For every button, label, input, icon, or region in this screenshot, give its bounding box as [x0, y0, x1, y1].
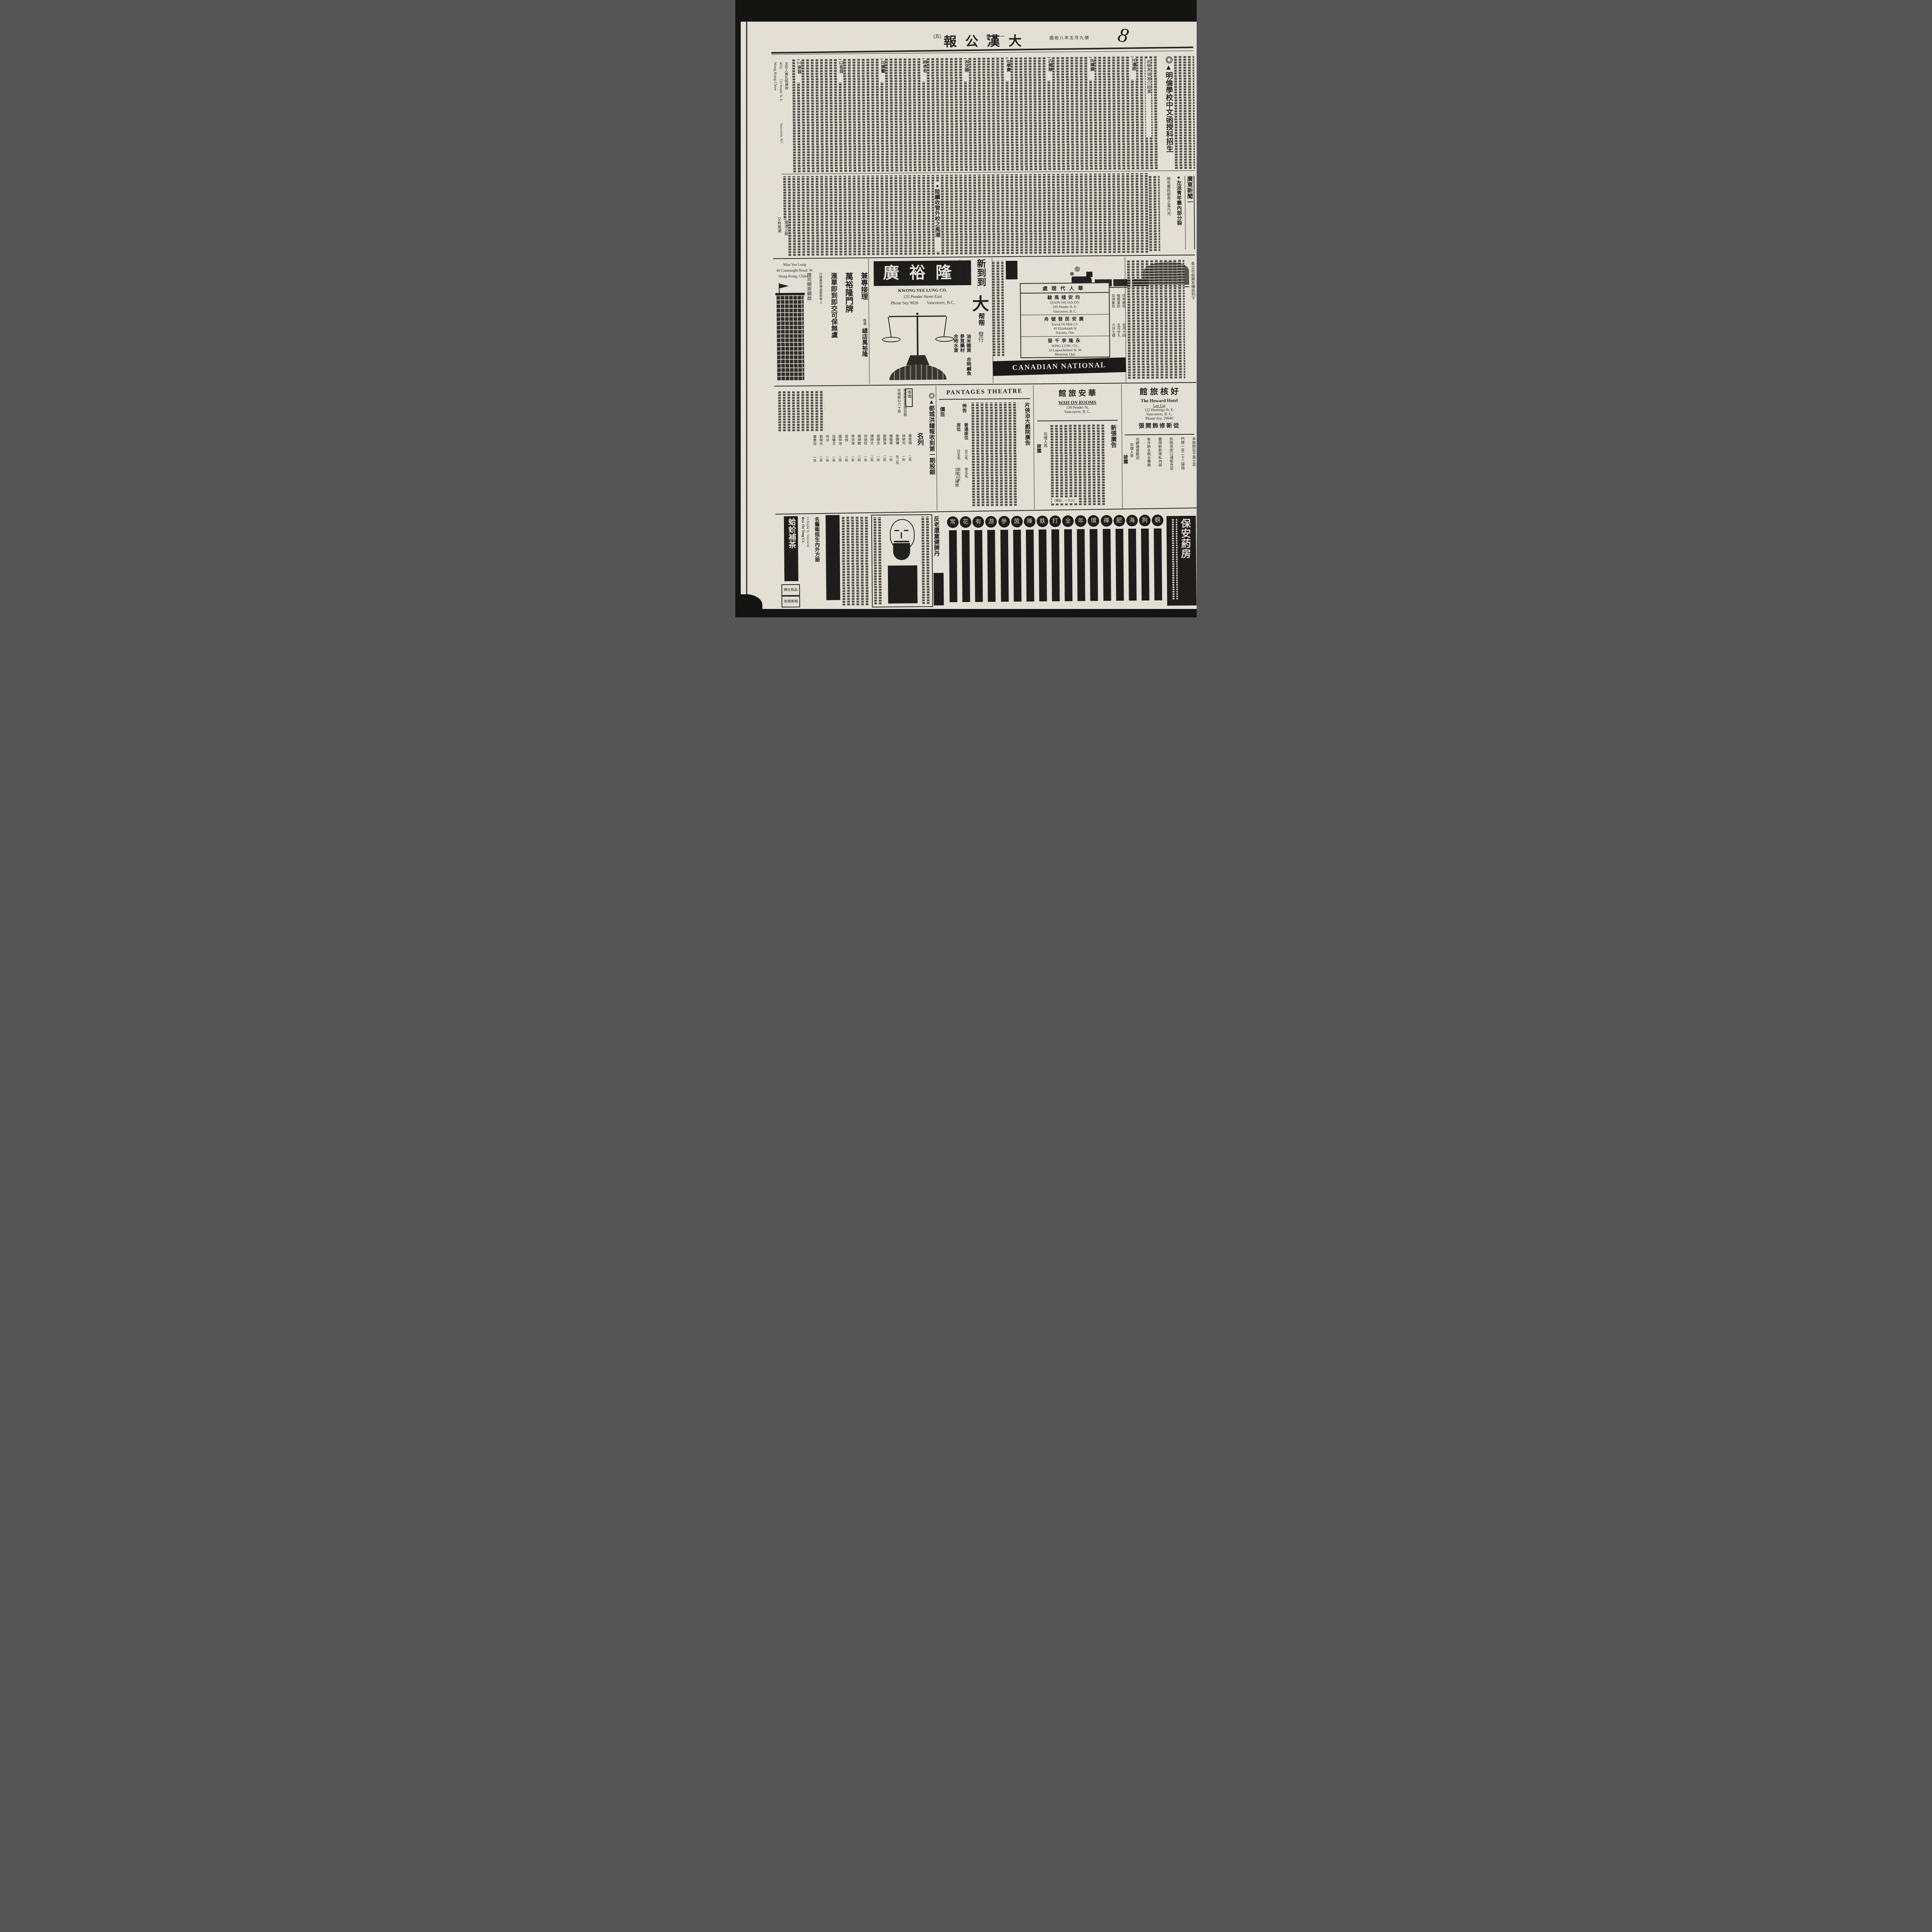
product-column: 覩: [1152, 515, 1164, 606]
section-notices: ◎▲都城洪鐘報收到第一期股銀 名列 本埠 域成政公司四百股坎城政公六十股 黃俊傑…: [776, 384, 1197, 512]
howard-rule: [1125, 434, 1194, 435]
agent-entry: 發千李隆永 WING LUNG CO., 33 Lagauchetiere St…: [1021, 336, 1109, 358]
pantages-side-headline: 片俠治大戲院廣告: [1024, 402, 1031, 503]
product-column: 年: [1075, 515, 1087, 606]
pantages-ad: PANTAGES THEATRE 片俠治大戲院廣告 佈告 價目 普通座位 日三毛…: [936, 385, 1034, 510]
product-column: 狗: [1139, 515, 1151, 606]
product-text-strip: [949, 530, 957, 602]
agents-list: 駿馬棧安均 QUON ON JAN CO. 295 Pender St. E. …: [1021, 293, 1109, 358]
agent-name-cn: 駿馬棧安均: [1021, 294, 1109, 301]
globe-base: [889, 364, 946, 380]
share-entry: 李洪淮 一股: [850, 435, 854, 469]
face-eye-right: [904, 530, 908, 531]
product-column: 打: [1049, 515, 1062, 607]
kyl-side-columns: 本玻璃圍合 時蔬菜常有: [957, 260, 971, 318]
goods-item: 參茸藥材: [959, 334, 964, 355]
smoke-puff: [1070, 272, 1074, 276]
howard-body-column: 光顧諸君歡迎: [1135, 437, 1139, 504]
agent-entry: 駿馬棧安均 QUON ON JAN CO. 295 Pender St. E. …: [1021, 293, 1109, 315]
bow-on-address: Bow On Tong Co. 13 Pender St. Vancouver: [801, 517, 810, 602]
goods-item: 油米雜貨: [966, 334, 971, 355]
product-column: 環: [1088, 515, 1100, 606]
man-yee-lung-copy: 兼專接理 香港 總店萬裕隆 萬裕隆門牌 滙單即到即交可保無虞 行情異即便函索即奉…: [806, 272, 868, 383]
share-entry: 關焯勳 二股: [857, 434, 861, 468]
howard-body: 本旅館在于喜士定門牌一百二十二號特別改良房口通氣充足盡用新款傢私內設有冷熱水俱全…: [1135, 437, 1196, 505]
product-column: 禪: [1100, 515, 1113, 606]
fares-label: 各公司船期及價目列下: [1189, 261, 1195, 378]
agent-en-line3: Vancouver, B. C.: [1021, 309, 1109, 314]
face-mustache: [894, 541, 909, 542]
product-column: 常: [947, 516, 959, 607]
agent-en-line3: Toronto, Ont.: [1021, 330, 1109, 335]
shareholder-amount: 一股: [813, 456, 816, 469]
newspaper-page-scan: (五) 星期一 報公漢大 國拾八年五月九號 8 ◎▲明倫學校中文函授科招生 前學…: [735, 0, 1197, 617]
date-line: 國拾八年五月九號: [1049, 34, 1090, 41]
scales-pedestal: [906, 355, 929, 366]
agent-en-line3: Montreal, Que.: [1021, 352, 1109, 357]
section-marker: ㈨擇課: [1089, 58, 1094, 80]
myl-en-1: Man Yee Lung: [776, 262, 834, 268]
product-text-strip: [1141, 529, 1150, 600]
sailing-schedule: 日本皇后 五月十四 俄國皇后 五月廿九 亞洲皇后 六月七號: [1111, 294, 1126, 355]
product-text-strip: [1102, 529, 1111, 601]
kyl-col-2: 時蔬菜常有: [957, 260, 963, 318]
section-marker: ㈩通訊: [1131, 57, 1136, 80]
product-badge: 海: [1126, 515, 1138, 526]
product-text-strip: [962, 530, 970, 602]
shareholder-name: 劉榮光: [819, 435, 823, 456]
product-column: 海: [1126, 515, 1138, 606]
howard-signature-2: 披露: [1122, 454, 1128, 478]
building-facade: [777, 294, 804, 381]
kyl-distrib: 發行: [978, 332, 984, 378]
kyl-col-1: 本玻璃圍合: [965, 260, 971, 318]
shareholder-amount: 一股: [845, 456, 848, 469]
shareholder-amount: 一股: [826, 456, 829, 469]
kwong-yee-lung-ad: 廣裕隆 KWONG YEE LUNG CO. 135 Pender Street…: [868, 258, 993, 384]
contact-signature: 主任人黃孔昭謹啟: [784, 62, 788, 120]
product-column: 參: [998, 516, 1010, 607]
myl-big-1: 萬裕隆門牌: [844, 272, 854, 350]
pantages-rule: [939, 398, 1030, 400]
share-entry: 雷仲池 二股: [838, 435, 842, 469]
ship-date: 五月廿九: [1116, 323, 1120, 350]
share-entry: 劉榮光 二股: [819, 435, 823, 469]
product-column: 花: [960, 516, 972, 607]
shareholder-amount: 一股: [832, 456, 835, 469]
illegible-text-block: [1149, 176, 1160, 251]
film-edge-left: [735, 0, 741, 617]
illegible-text-block: [778, 391, 825, 431]
shareholder-name: 林榮光: [901, 434, 905, 455]
product-text-strip: [1000, 530, 1009, 602]
ink-stamp-box: [1006, 261, 1017, 279]
contact-address-1: 722 Pender St. E.: [779, 79, 783, 121]
share-entry: 譚焯文 二股: [870, 434, 874, 468]
shareholder-name: 麥錦鏞: [895, 434, 899, 455]
price-group: 普通座位 日三毛 夜五毛: [963, 423, 968, 506]
school-ad-headline: ◎▲明倫學校中文函授科招生: [1164, 55, 1173, 170]
product-text-strip: [1090, 529, 1098, 601]
section-marker: ㈣命名: [922, 59, 927, 82]
shareholder-name: 關焯勳: [857, 434, 861, 455]
face-nose: [901, 532, 902, 539]
shareholder-name: 劉興淮: [883, 434, 886, 455]
article-tail-2: 雲湧之勢: [783, 219, 788, 258]
pharmacy-title: 保安葯房: [1180, 518, 1191, 595]
wah-on-signature-1: 司理人馬: [1042, 431, 1047, 468]
product-text-strip: [1013, 530, 1022, 602]
product-badge: 全: [1062, 515, 1074, 527]
film-edge-bottom: [735, 609, 1197, 617]
product-badge: 陳: [1024, 515, 1035, 527]
face-box-text-panel: [888, 565, 918, 604]
howard-hotel-ad: 館 旅 核 好 The Howard Hotel Lee Lip 122 Has…: [1121, 384, 1197, 509]
howard-signature-1: 司理人李: [1129, 442, 1134, 478]
locomotive-cab: [1086, 272, 1092, 277]
lead-entry: 域成政公司四百股: [903, 388, 906, 431]
lead-entry: 坎城政公六十股: [897, 389, 901, 431]
kyl-big-copy: 新到到 大 帮帮 發行: [970, 259, 992, 382]
myl-branch: 總店萬裕隆: [861, 328, 868, 370]
product-badges-strip: 覩 狗 海 肥: [947, 515, 1164, 608]
ship-name: 俄國皇后: [1116, 294, 1120, 323]
shareholder-name: 葉惠伯: [813, 435, 816, 456]
scales-post: [917, 316, 918, 356]
ship-date: 五月十四: [1122, 323, 1126, 349]
product-badge: 年: [1075, 515, 1087, 527]
howard-body-column: 盡用新款傢私內設: [1157, 437, 1162, 504]
contact-address-2: Vancouver, B.C.: [779, 123, 784, 162]
section-marker: ㈧開辦: [1047, 58, 1053, 80]
agent-name-cn: 發千李隆永: [1021, 337, 1109, 344]
face-illustration: [889, 519, 915, 562]
product-column: 有: [973, 516, 985, 607]
shareholder-amount: 一股: [851, 456, 854, 469]
sailing-entry: 俄國皇后 五月廿九: [1116, 294, 1121, 356]
kyl-helpers: 帮帮: [977, 313, 984, 332]
goods-item: 合時水貨: [953, 334, 958, 355]
tonic-ink-box: [934, 573, 944, 605]
share-entry: 麥錦鏞 各二股: [895, 434, 899, 468]
product-text-strip: [1064, 529, 1073, 601]
kwong-yee-lung-banner: 廣裕隆: [874, 260, 971, 286]
product-badge: 參: [998, 516, 1010, 527]
product-badge: 游: [985, 516, 997, 527]
share-entry: 何法 一股: [825, 435, 829, 469]
product-badge: 覩: [1152, 515, 1163, 526]
illegible-text-block: [1174, 56, 1195, 169]
wah-on-ad: 館 旅 安 華 WAH ON ROOMS 139 Pender St, Vanc…: [1033, 384, 1122, 510]
shares-headline: ◎▲都城洪鐘報收到第一期股銀: [928, 393, 935, 505]
product-badge: 有: [973, 516, 984, 528]
product-badge: 鉄: [1037, 515, 1048, 527]
howard-reopen-line: 張開飾修新從: [1122, 421, 1197, 430]
news-headline-schools: ●陸續收管外校之風潮: [934, 182, 941, 252]
share-entry: 周棣生 一股: [876, 434, 880, 468]
article-tail-1: 又有風潮: [776, 216, 781, 255]
tea-sub-box-1: 親化桂品: [781, 584, 800, 596]
shares-lead-entries: 域成政公司四百股坎城政公六十股: [897, 388, 907, 431]
seat-class: 普通座位: [963, 423, 968, 448]
shareholder-name: 譚焯文: [870, 434, 874, 455]
section-ads-band: Man Yee Lung 40 Connaught Road. W. Hong …: [775, 256, 1197, 385]
product-column: 全: [1062, 515, 1075, 607]
page-content: (五) 星期一 報公漢大 國拾八年五月九號 8 ◎▲明倫學校中文函授科招生 前學…: [735, 0, 1197, 617]
pantages-price-table: 普通座位 日三毛 夜五毛 房位 日五毛 夜七毛半: [937, 423, 969, 507]
share-entry: 黃俊傑 二股: [908, 434, 912, 468]
section-medicine-strip: 蛤蚧補茶 親化桂品 各頭香烟 Bow On Tong Co. 13 Pender…: [777, 510, 1197, 610]
section-marker: ㈡名目: [838, 60, 844, 82]
ship-date: 六月七號: [1111, 323, 1115, 350]
news-headline-split: ●左派青年團內部分裂: [1176, 174, 1182, 251]
shares-name-grid: 黃俊傑 二股 林榮光 一股 麥錦鏞 各二股: [779, 434, 912, 509]
product-badge: 茵: [1011, 516, 1022, 527]
product-badge: 打: [1049, 515, 1061, 527]
pantages-price-header: 價目: [939, 406, 945, 421]
shares-notice: ◎▲都城洪鐘報收到第一期股銀 名列 本埠 域成政公司四百股坎城政公六十股 黃俊傑…: [776, 386, 937, 512]
myl-big-2: 滙單即到即交可保無虞: [830, 272, 837, 377]
school-ad-intro-column: 前學界領袖介紹書: [1146, 59, 1151, 138]
scales-illustration: [884, 312, 951, 381]
man-yee-lung-ad: Man Yee Lung 40 Connaught Road. W. Hong …: [775, 259, 869, 385]
product-badge: 禪: [1100, 515, 1112, 527]
illegible-text-block: [1051, 424, 1105, 505]
agents-header: 處理代人華: [1020, 283, 1109, 294]
shareholder-name: 周棣生: [876, 434, 880, 455]
pantages-title: PANTAGES THEATRE: [939, 388, 1030, 396]
shareholder-amount: 一股: [864, 455, 867, 468]
wah-on-signature-2: 披露: [1036, 443, 1042, 468]
tea-box: 蛤蚧補茶: [784, 516, 798, 581]
sailing-entry: 亞洲皇后 六月七號: [1111, 294, 1115, 356]
howard-body-column: 有冷熱水俱全備胞: [1146, 437, 1150, 504]
product-column: 陳: [1024, 515, 1036, 607]
illegible-text-block: [992, 261, 1004, 356]
agent-entry: 舟號發民安廣 Kwon On Man Co. 45 Elizebeath St …: [1021, 315, 1109, 337]
shareholder-amount: 二股: [870, 455, 874, 468]
product-text-strip: [975, 530, 983, 602]
shareholder-name: 司徒旺: [863, 434, 867, 455]
share-entry: 葉惠伯 一股: [813, 435, 816, 469]
share-entry: 司徒旺 一股: [863, 434, 867, 468]
shareholder-amount: 一股: [902, 455, 905, 468]
section-marker: ㈠宗旨: [796, 60, 801, 83]
section-top-articles: ◎▲明倫學校中文函授科招生 前學界領袖介紹書 ㈩通訊㈨擇課㈧開辦㈦學費㈤交際㈣命…: [773, 54, 1196, 257]
shareholder-name: 李洪淮: [850, 435, 854, 456]
masthead-title: 報公漢大: [929, 30, 1045, 50]
shareholder-amount: 一股: [876, 455, 880, 468]
product-text-strip: [1026, 530, 1034, 602]
share-entry: 陳蔭南 一股: [889, 434, 893, 468]
product-text-strip: [1116, 529, 1124, 601]
face-eye-left: [895, 530, 899, 531]
pharmacy-block: 保安葯房: [1167, 516, 1197, 606]
contact-name-en: Wong Kong Chow: [773, 62, 778, 147]
shareholder-amount: 二股: [838, 456, 842, 469]
share-entry: 劉興淮 二股: [883, 434, 886, 468]
shareholder-amount: 一股: [889, 455, 893, 468]
kyl-goods-grid: 油米雜貨參茸藥材合時水貨合時鹹魚: [948, 334, 971, 379]
howard-en-1: The Howard Hotel: [1121, 398, 1197, 404]
product-text-strip: [1039, 529, 1047, 601]
product-badge: 常: [947, 516, 959, 528]
scales-pan-left: [882, 337, 901, 342]
rejuvenation-ad-box: [871, 514, 933, 607]
tea-sub-box-2: 各頭香烟: [781, 596, 800, 607]
product-text-strip: [1128, 529, 1137, 600]
shareholder-amount: 各二股: [895, 455, 899, 468]
wah-on-rule: [1037, 420, 1118, 422]
product-badge: 環: [1088, 515, 1099, 527]
shareholder-amount: 二股: [908, 455, 912, 468]
news-rail-header: 廣東新聞一: [1185, 176, 1195, 249]
product-badge: 狗: [1139, 515, 1151, 526]
shareholder-amount: 二股: [857, 455, 861, 468]
myl-signature: 理司關崇顯啟: [806, 273, 812, 358]
share-entry: 伍耀文 一股: [832, 435, 835, 469]
share-entry: 梁桂 一股: [844, 435, 848, 469]
scales-chain-right: [944, 316, 947, 337]
tonic-column: 反老還童健脾丹: [933, 516, 940, 570]
wah-on-new-ad-label: 新張廣告: [1110, 425, 1117, 471]
illegible-text-block: [842, 516, 870, 605]
howard-en-5: Phone Sey. 29640: [1121, 416, 1197, 421]
shareholder-name: 黃俊傑: [908, 434, 912, 455]
share-entry: 林榮光 一股: [901, 434, 905, 468]
product-badge: 花: [960, 516, 971, 528]
day-price: 日五毛: [956, 449, 960, 466]
myl-note: 行情異即便函索即奉上: [819, 272, 823, 342]
product-column: 茵: [1011, 516, 1023, 607]
cnr-banner: CANADIAN NATIONAL RAILWAYS: [993, 357, 1126, 376]
scales-finial: [916, 313, 918, 315]
ship-name: 亞洲皇后: [1111, 294, 1115, 323]
scales-chain-left: [888, 317, 891, 337]
section-marker: ㈢課藝: [880, 60, 885, 82]
illegible-text-block: [1127, 259, 1185, 379]
shareholder-name: 梁桂: [844, 435, 848, 456]
howard-body-column: 門牌一百二十二號特: [1180, 437, 1184, 503]
doctor-column: 名醫衛挺生內外方脈: [814, 517, 820, 605]
section-marker: ㈦學費: [1005, 58, 1011, 81]
goods-item: 合時鹹魚: [966, 357, 971, 379]
myl-service: 兼專接理: [860, 272, 868, 318]
product-text-strip: [1154, 529, 1162, 600]
product-column: 游: [985, 516, 998, 607]
cnr-ad: 處理代人華 駿馬棧安均 QUON ON JAN CO. 295 Pender S…: [992, 257, 1126, 383]
myl-branch-small: 香港: [862, 318, 866, 328]
shareholder-name: 何法: [825, 435, 829, 456]
contact-phone: 4032.: [779, 62, 782, 77]
product-text-strip: [1051, 529, 1060, 601]
shareholder-amount: 二股: [883, 455, 886, 468]
kyl-big-da: 大: [972, 296, 989, 313]
product-text-strip: [1077, 529, 1085, 601]
school-ad-section-markers: ㈩通訊㈨擇課㈧開辦㈦學費㈤交際㈣命名㈢課藝㈡名目㈠宗旨: [796, 57, 1136, 83]
shareholder-name: 伍耀文: [832, 435, 835, 456]
product-column: 肥: [1113, 515, 1126, 606]
bow-on-en-2: 13 Pender St. Vancouver: [806, 517, 810, 602]
section-marker: ㈤交際: [964, 59, 969, 81]
day-price: 日三毛: [964, 449, 968, 466]
tea-box-title: 蛤蚧補茶: [787, 518, 796, 580]
handwritten-page-mark: 8: [1116, 23, 1130, 48]
shareholder-name: 陳蔭南: [889, 434, 893, 455]
building-cornice: [776, 293, 805, 296]
film-edge-top: [735, 0, 1197, 22]
illegible-text-block: [874, 517, 883, 604]
illegible-text-block: [971, 402, 1019, 506]
bow-on-en-1: Bow On Tong Co.: [801, 517, 806, 594]
film-scratch-line: [746, 22, 747, 617]
face-beard: [893, 543, 910, 560]
shareholder-name: 雷仲池: [838, 435, 842, 456]
chinese-agents-box: 處理代人華 駿馬棧安均 QUON ON JAN CO. 295 Pender S…: [1020, 282, 1110, 358]
product-badge: 肥: [1113, 515, 1125, 526]
agent-name-cn: 舟號發民安廣: [1021, 315, 1109, 323]
script-ink-box: [826, 515, 840, 600]
cnr-fares-columns: 各公司船期及價目列下: [1125, 256, 1197, 382]
seat-class: 房位: [956, 423, 960, 448]
news-headline-sub: 現充農民部長之易乃光: [1166, 177, 1170, 250]
pharmacy-text-strip: [1172, 518, 1178, 599]
wah-on-phone-note: （電話…一九九）: [1052, 498, 1077, 504]
howard-body-column: 別改良房口通氣充足: [1169, 437, 1173, 503]
pantages-notice-label: 佈告: [961, 403, 967, 421]
illegible-text-block: [922, 517, 931, 604]
product-column: 鉄: [1037, 515, 1049, 607]
smoke-puff: [1075, 266, 1080, 272]
building-illustration: [777, 293, 804, 381]
shareholder-amount: 二股: [819, 456, 823, 469]
flag-icon: [779, 284, 789, 288]
kyl-big-new: 新到到: [975, 259, 985, 296]
wah-on-en-3: Vancouver, B. C.: [1033, 410, 1121, 415]
product-text-strip: [987, 530, 996, 602]
wah-on-title-cn: 館 旅 安 華: [1033, 384, 1121, 399]
pantages-signature: 司理人謹啟: [954, 467, 959, 507]
howard-title-cn: 館 旅 核 好: [1121, 384, 1197, 398]
news-rail: 廣東新聞一 ●左派青年團內部分裂 現充農民部長之易乃光: [1149, 173, 1196, 253]
howard-body-column: 本旅館在于喜士定: [1191, 437, 1196, 503]
shares-headline-2: 名列: [916, 432, 923, 459]
illegible-text-block: [783, 173, 1150, 256]
night-price: 夜五毛: [964, 468, 968, 489]
